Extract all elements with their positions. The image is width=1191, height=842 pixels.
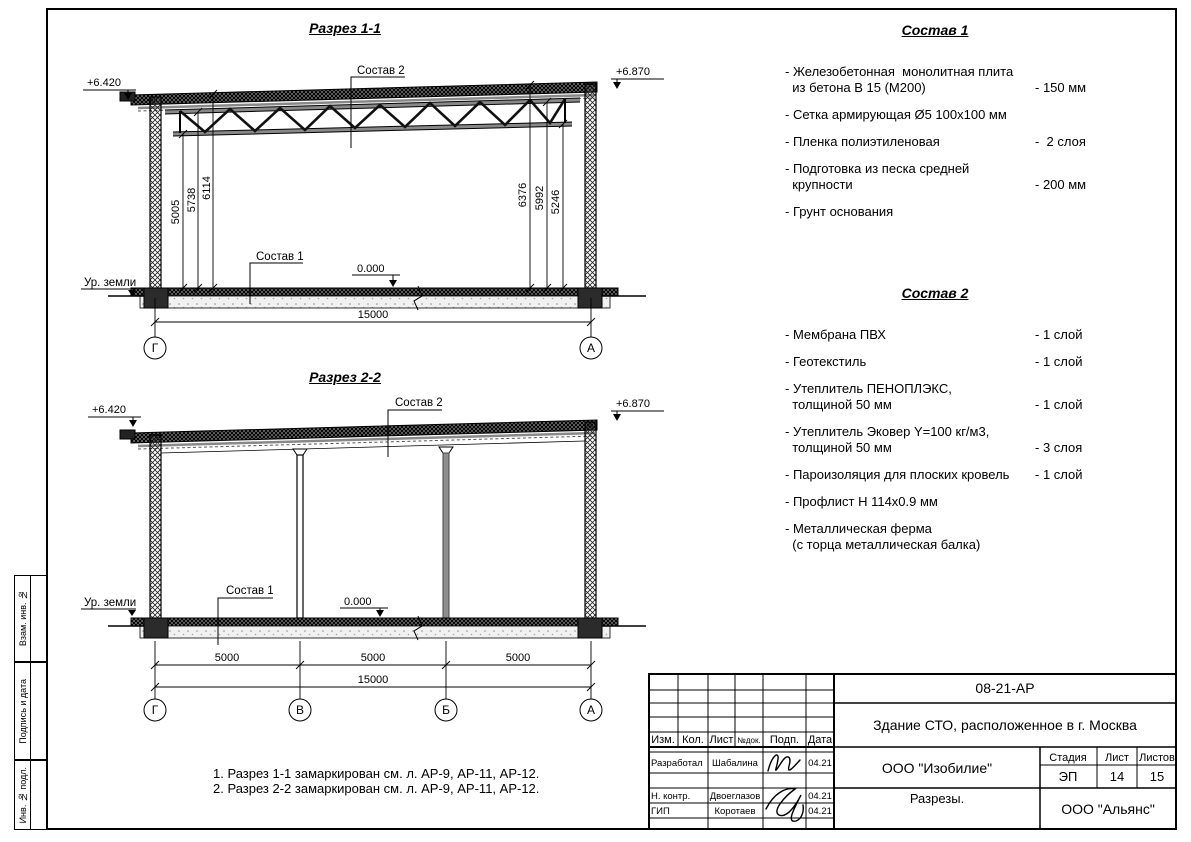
stamp-label: Инв. № подл.: [18, 767, 28, 823]
roof-truss: [165, 98, 580, 136]
elevation-mark-right: +6.870: [611, 66, 664, 89]
axis-letter: Г: [152, 341, 159, 355]
ground-level-label: Ур. земли: [81, 597, 136, 616]
sheet-label: Лист: [1105, 752, 1129, 764]
list-item: - Металлическая ферма (с торца металличе…: [780, 521, 1130, 553]
staff-role: Н. контр.: [651, 791, 690, 802]
floor-slab: [108, 616, 646, 640]
list-item: - Сетка армирующая Ø5 100х100 мм: [780, 107, 1130, 123]
zero-level-mark: 0.000: [340, 596, 388, 617]
item-value: - 1 слой: [1035, 327, 1130, 343]
section2-title: Разрез 2-2: [60, 369, 630, 385]
span-dims: 5000 5000 5000 15000: [151, 641, 595, 699]
list-item: - Геотекстиль - 1 слой: [780, 354, 1130, 370]
item-value: - 2 слоя: [1035, 134, 1130, 150]
axis-letter: В: [296, 703, 304, 717]
stage-value: ЭП: [1059, 769, 1078, 784]
axis-bubbles: Г В Б А: [144, 699, 602, 721]
object-name: Здание СТО, расположенное в г. Москва: [873, 717, 1137, 733]
item-text: - Мембрана ПВХ: [785, 327, 1035, 343]
elevation-mark-left: +6.420: [88, 404, 141, 427]
stamp-box-podpis: Подпись и дата: [14, 662, 47, 760]
col-header: Подп.: [770, 734, 799, 746]
col-header: Изм.: [651, 734, 675, 746]
staff-name: Двоеглазов: [710, 791, 761, 802]
left-wall: [150, 97, 161, 288]
sostav2-callout: Состав 2: [395, 397, 443, 409]
vertical-dims-left: 5005 5738 6114: [170, 90, 217, 292]
dim-value: 5246: [550, 190, 562, 214]
right-wall: [585, 84, 596, 288]
note-line: 1. Разрез 1-1 замаркирован см. л. АР-9, …: [213, 766, 539, 781]
dim-value: 5992: [534, 186, 546, 210]
axis-letter: А: [587, 703, 595, 717]
stamp-box-label-cell: Подпись и дата: [15, 663, 31, 759]
column-axis-b: [439, 447, 453, 618]
section1-title: Разрез 1-1: [60, 20, 630, 36]
elevation-value: +6.420: [92, 404, 126, 416]
axis-letter: Г: [152, 703, 159, 717]
sheet-number: 14: [1110, 769, 1124, 784]
dim-value: 5738: [186, 188, 198, 212]
stage-label: Стадия: [1049, 752, 1087, 764]
list-item: - Мембрана ПВХ - 1 слой: [780, 327, 1130, 343]
staff-date: 04.21: [808, 758, 832, 769]
drawing-sheet: Взам. инв. № Подпись и дата Инв. № подл.…: [0, 0, 1191, 842]
list-item: - Подготовка из песка средней крупности …: [780, 161, 1130, 193]
dim-value: 5005: [170, 200, 182, 224]
designer-org: ООО "Изобилие": [882, 760, 992, 776]
sostav2-callout: Состав 2: [357, 65, 405, 77]
sheets-label: Листов: [1139, 752, 1175, 764]
axis-letter: Б: [442, 703, 450, 717]
sostav1-callout: Состав 1: [226, 585, 274, 597]
axis-bubbles: Г А: [144, 337, 602, 359]
sostav1-heading: Состав 1: [780, 22, 1090, 38]
contractor-org: ООО "Альянс": [1061, 801, 1155, 817]
list-item: - Железобетонная монолитная плита из бет…: [780, 64, 1130, 96]
col-header: Лист: [710, 734, 734, 746]
elevation-mark-right: +6.870: [611, 398, 664, 421]
col-header: Кол.: [682, 734, 704, 746]
sostav2-panel: Состав 2 - Мембрана ПВХ - 1 слой - Геоте…: [780, 285, 1180, 564]
dim-total-value: 15000: [358, 674, 389, 686]
ground-label: Ур. земли: [84, 277, 136, 289]
sostav1-panel: Состав 1 - Железобетонная монолитная пли…: [780, 22, 1180, 231]
staff-role: ГИП: [651, 806, 670, 817]
document-number: 08-21-АР: [975, 680, 1034, 696]
title-block: Изм. Кол. Лист №док. Подп. Дата Разработ…: [648, 673, 1177, 830]
right-wall: [585, 422, 596, 618]
section1-drawing: +6.420 +6.870 Состав 2 Состав 1 0.000: [60, 40, 680, 370]
item-text: - Железобетонная монолитная плита из бет…: [785, 64, 1035, 96]
ground-label: Ур. земли: [84, 597, 136, 609]
col-header: Дата: [808, 734, 833, 746]
item-value: - 3 слоя: [1035, 440, 1130, 456]
staff-date: 04.21: [808, 806, 832, 817]
stamp-box-label-cell: Инв. № подл.: [15, 761, 31, 829]
item-text: - Подготовка из песка средней крупности: [785, 161, 1035, 193]
list-item: - Грунт основания: [780, 204, 1130, 220]
stamp-label: Взам. инв. №: [18, 590, 28, 646]
zero-level-value: 0.000: [357, 263, 385, 275]
item-text: - Металлическая ферма (с торца металличе…: [785, 521, 1035, 553]
item-value: - 150 мм: [1035, 80, 1130, 96]
list-item: - Профлист Н 114х0.9 мм: [780, 494, 1130, 510]
staff-name: Коротаев: [714, 806, 755, 817]
section2-drawing: +6.420 +6.870 Состав 2 Состав 1 0.000: [60, 385, 680, 740]
elevation-value: +6.870: [616, 66, 650, 78]
dim-value: 6376: [517, 183, 529, 207]
dim-value: 5000: [506, 652, 530, 664]
item-text: - Утеплитель Эковер Y=100 кг/м3, толщино…: [785, 424, 1035, 456]
dim-total-value: 15000: [358, 309, 389, 321]
list-item: - Пароизоляция для плоских кровель - 1 с…: [780, 467, 1130, 483]
stamp-label: Подпись и дата: [18, 679, 28, 744]
left-wall: [150, 435, 161, 618]
axis-letter: А: [587, 341, 595, 355]
signature: [768, 755, 800, 771]
dim-value: 5000: [215, 652, 239, 664]
col-header: №док.: [737, 736, 760, 745]
sheet-name: Разрезы.: [910, 791, 964, 806]
staff-role: Разработал: [651, 758, 703, 769]
elevation-value: +6.870: [616, 398, 650, 410]
stamp-box-vzam: Взам. инв. №: [14, 575, 47, 662]
elevation-mark-left: +6.420: [83, 77, 136, 100]
column-axis-v: [293, 449, 307, 618]
roof-slab: [120, 420, 597, 453]
item-value: - 1 слой: [1035, 354, 1130, 370]
sheets-total: 15: [1150, 769, 1164, 784]
sostav1-callout: Состав 1: [256, 251, 304, 263]
elevation-value: +6.420: [87, 77, 121, 89]
item-text: - Пленка полиэтиленовая: [785, 134, 1035, 150]
staff-date: 04.21: [808, 791, 832, 802]
signature: [766, 789, 803, 822]
zero-level-mark: 0.000: [352, 263, 400, 287]
dim-value: 6114: [201, 176, 213, 200]
item-text: - Грунт основания: [785, 204, 1035, 220]
item-text: - Профлист Н 114х0.9 мм: [785, 494, 1035, 510]
stamp-box-inv: Инв. № подл.: [14, 760, 47, 830]
list-item: - Пленка полиэтиленовая - 2 слоя: [780, 134, 1130, 150]
dim-value: 5000: [361, 652, 385, 664]
list-item: - Утеплитель Эковер Y=100 кг/м3, толщино…: [780, 424, 1130, 456]
list-item: - Утеплитель ПЕНОПЛЭКС, толщиной 50 мм -…: [780, 381, 1130, 413]
item-text: - Утеплитель ПЕНОПЛЭКС, толщиной 50 мм: [785, 381, 1035, 413]
item-text: - Геотекстиль: [785, 354, 1035, 370]
item-text: - Пароизоляция для плоских кровель: [785, 467, 1035, 483]
zero-level-value: 0.000: [344, 596, 372, 608]
sheet-notes: 1. Разрез 1-1 замаркирован см. л. АР-9, …: [213, 766, 539, 796]
sostav2-heading: Состав 2: [780, 285, 1090, 301]
stamp-box-label-cell: Взам. инв. №: [15, 576, 31, 661]
floor-slab: [108, 286, 646, 310]
item-value: - 1 слой: [1035, 467, 1130, 483]
note-line: 2. Разрез 2-2 замаркирован см. л. АР-9, …: [213, 781, 539, 796]
item-value: - 1 слой: [1035, 397, 1130, 413]
staff-name: Шабалина: [712, 758, 759, 769]
ground-level-label: Ур. земли: [81, 277, 136, 296]
item-value: - 200 мм: [1035, 177, 1130, 193]
item-text: - Сетка армирующая Ø5 100х100 мм: [785, 107, 1035, 123]
